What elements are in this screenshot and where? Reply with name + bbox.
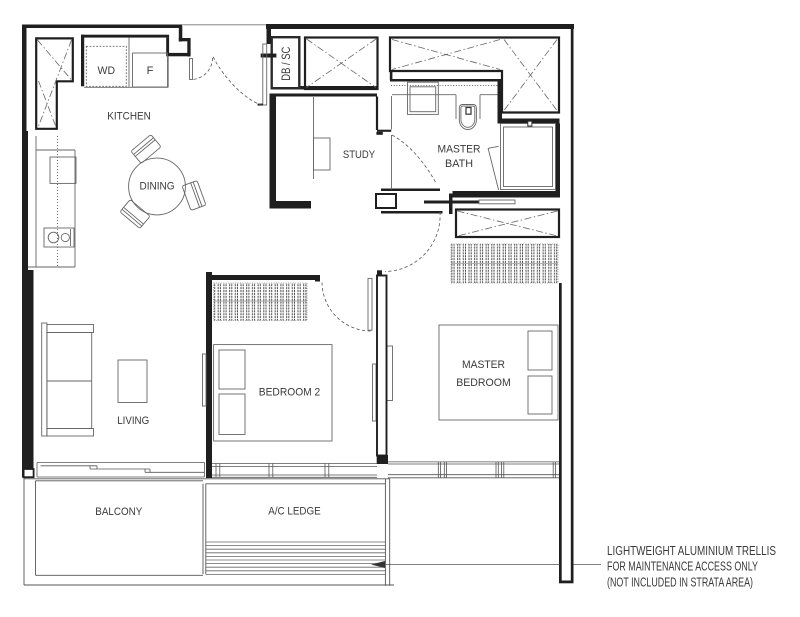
svg-text:STUDY: STUDY	[343, 149, 376, 161]
svg-text:MASTER: MASTER	[438, 144, 481, 156]
svg-text:LIVING: LIVING	[117, 415, 149, 427]
svg-text:BEDROOM: BEDROOM	[456, 377, 511, 389]
svg-text:BALCONY: BALCONY	[95, 506, 143, 518]
svg-text:BEDROOM 2: BEDROOM 2	[259, 386, 321, 398]
svg-text:DINING: DINING	[140, 181, 175, 193]
svg-text:MASTER: MASTER	[462, 359, 505, 371]
svg-text:WD: WD	[98, 65, 116, 77]
svg-text:DB / SC: DB / SC	[279, 46, 293, 80]
svg-text:LIGHTWEIGHT ALUMINIUM TRELLIS: LIGHTWEIGHT ALUMINIUM TRELLIS	[607, 544, 776, 558]
svg-text:KITCHEN: KITCHEN	[107, 111, 151, 123]
svg-text:F: F	[147, 65, 154, 77]
svg-text:FOR MAINTENANCE ACCESS ONLY: FOR MAINTENANCE ACCESS ONLY	[607, 559, 758, 573]
svg-text:(NOT INCLUDED IN STRATA AREA): (NOT INCLUDED IN STRATA AREA)	[607, 575, 753, 589]
svg-text:BATH: BATH	[445, 158, 473, 170]
svg-text:A/C LEDGE: A/C LEDGE	[268, 506, 321, 518]
